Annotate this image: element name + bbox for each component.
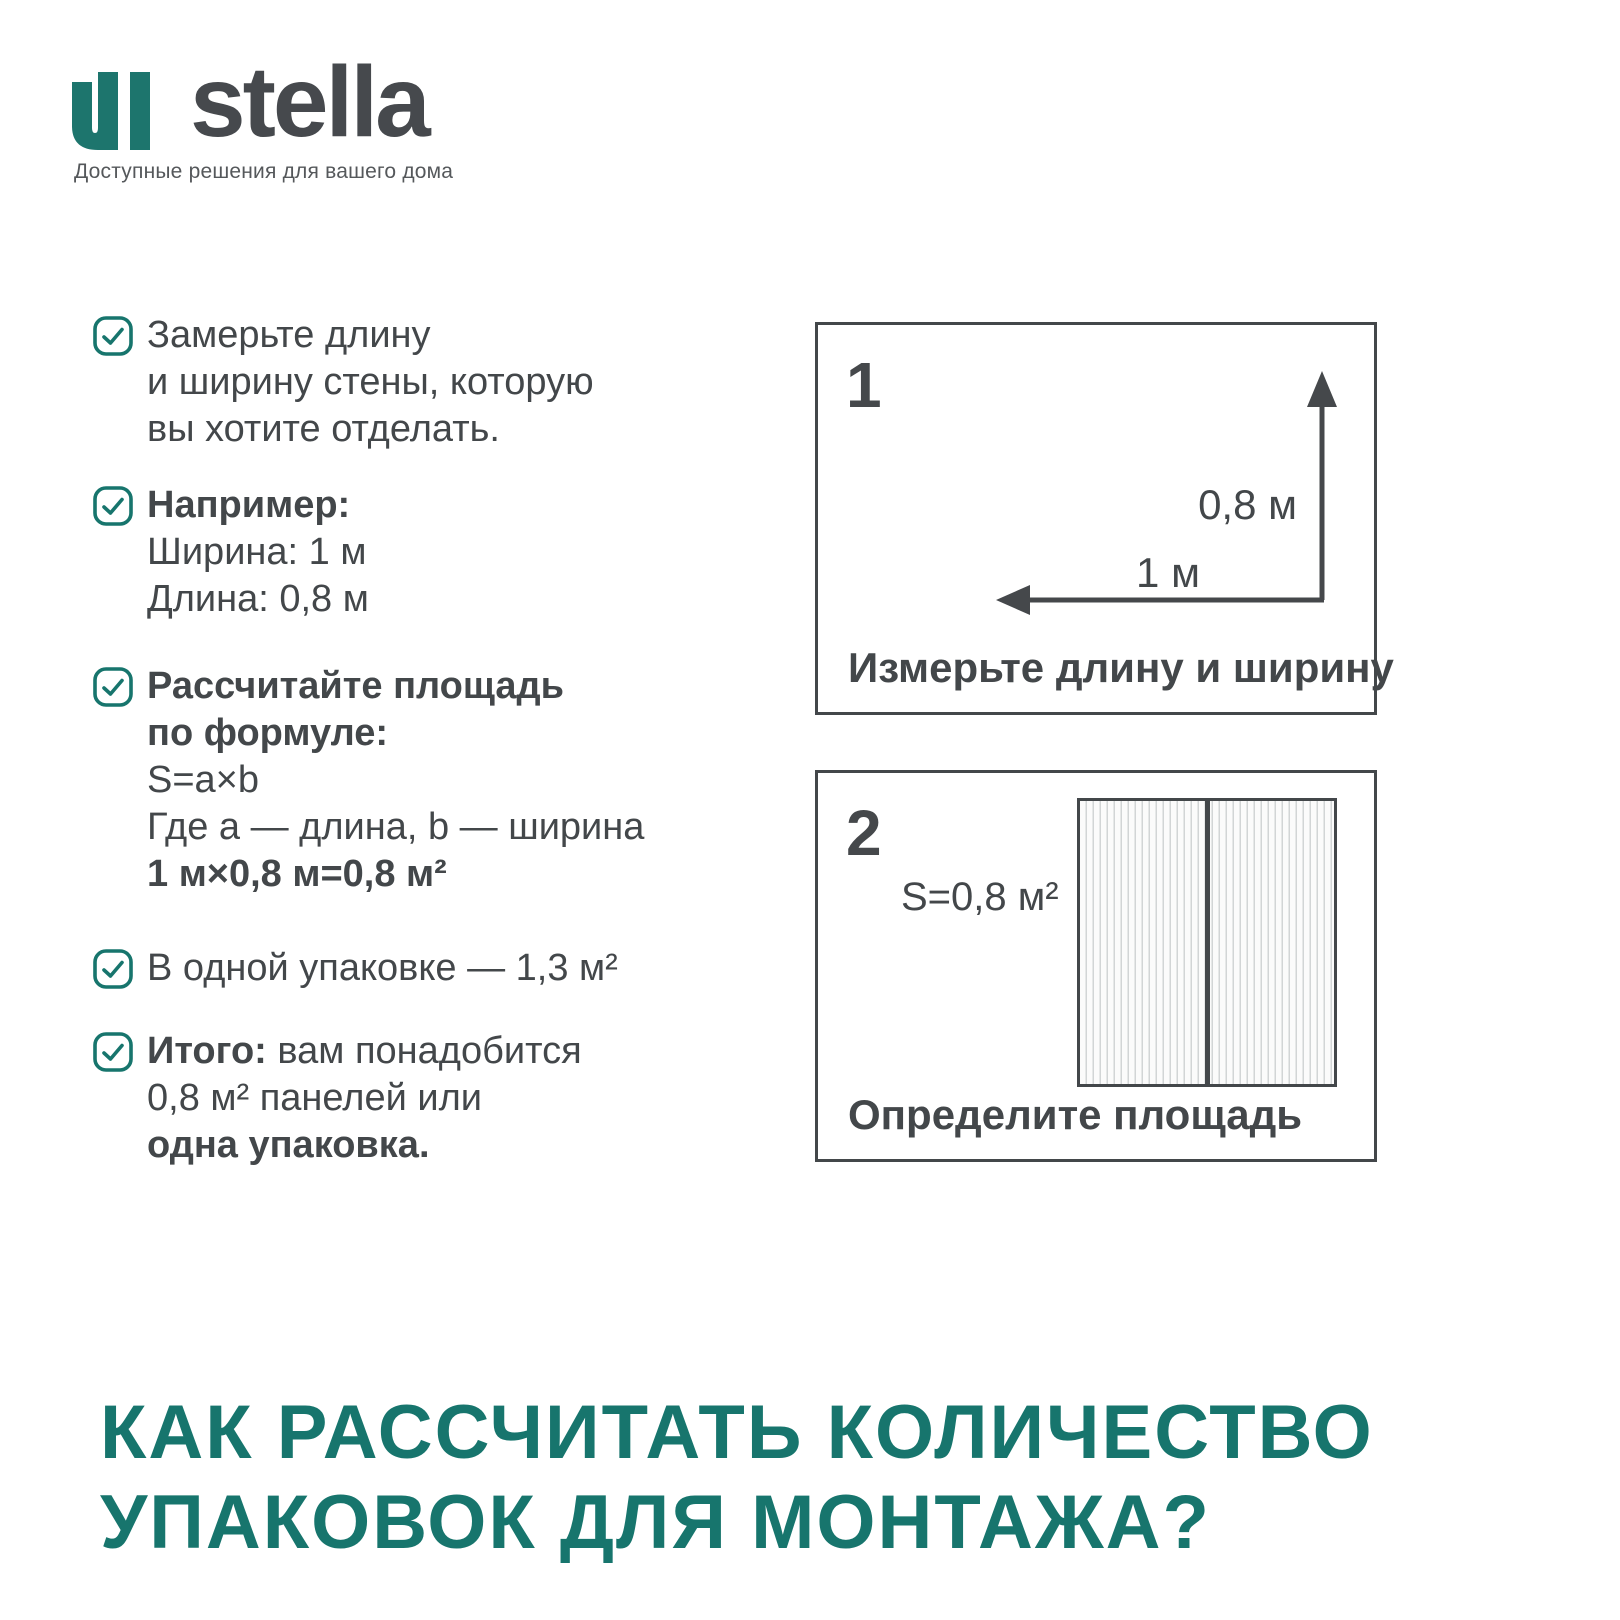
checklist-line: Ширина: 1 м <box>147 529 369 576</box>
step-box-2: 2 S=0,8 м² Определите площадь <box>815 770 1377 1162</box>
checklist-line: вы хотите отделать. <box>147 406 594 453</box>
page-title-line: КАК РАССЧИТАТЬ КОЛИЧЕСТВО <box>100 1388 1374 1478</box>
checklist-text: Итого: вам понадобится 0,8 м² панелей ил… <box>147 1028 582 1169</box>
page-title-line: УПАКОВОК ДЛЯ МОНТАЖА? <box>100 1478 1374 1568</box>
wall-panels-illustration <box>1077 798 1337 1087</box>
checklist-line: Где a — длина, b — ширина <box>147 804 644 851</box>
checklist-formula: 1 м×0,8 м=0,8 м² <box>147 851 644 898</box>
brand-tagline: Доступные решения для вашего дома <box>74 160 453 184</box>
checklist-line: Замерьте длину <box>147 312 594 359</box>
step-caption: Измерьте длину и ширину <box>848 644 1394 692</box>
checklist-item-measure: Замерьте длину и ширину стены, которую в… <box>93 312 733 453</box>
step-caption: Определите площадь <box>848 1091 1302 1139</box>
checklist-line: 0,8 м² панелей или <box>147 1075 582 1122</box>
checklist-item-example: Например: Ширина: 1 м Длина: 0,8 м <box>93 482 733 623</box>
checkmark-icon <box>93 949 133 989</box>
checkmark-icon <box>93 486 133 526</box>
left-arrowhead-icon <box>996 585 1030 615</box>
checklist-heading: по формуле: <box>147 710 644 757</box>
checklist-line: и ширину стены, которую <box>147 359 594 406</box>
panel-divider <box>1205 801 1210 1084</box>
step-box-1: 1 0,8 м 1 м Измерьте длину и ширину <box>815 322 1377 715</box>
checkmark-icon <box>93 316 133 356</box>
checklist-text: Например: Ширина: 1 м Длина: 0,8 м <box>147 482 369 623</box>
area-label: S=0,8 м² <box>901 875 1059 920</box>
checklist-line: Длина: 0,8 м <box>147 576 369 623</box>
checklist-item-package-area: В одной упаковке — 1,3 м² <box>93 945 733 992</box>
vertical-dimension-label: 0,8 м <box>1198 481 1297 529</box>
checklist-line: Итого: вам понадобится <box>147 1028 582 1075</box>
checklist-line-rest: вам понадобится <box>267 1030 582 1072</box>
checklist-line: одна упаковка. <box>147 1122 582 1169</box>
checklist-text: Замерьте длину и ширину стены, которую в… <box>147 312 594 453</box>
checkmark-icon <box>93 1032 133 1072</box>
checklist-item-formula: Рассчитайте площадь по формуле: S=a×b Гд… <box>93 663 733 898</box>
horizontal-dimension-label: 1 м <box>1098 549 1238 597</box>
step-number: 2 <box>846 801 882 865</box>
checklist-item-total: Итого: вам понадобится 0,8 м² панелей ил… <box>93 1028 733 1169</box>
checklist-text: В одной упаковке — 1,3 м² <box>147 945 618 992</box>
up-arrowhead-icon <box>1307 371 1337 407</box>
infographic-canvas: stella Доступные решения для вашего дома… <box>0 0 1620 1620</box>
checklist-heading: Например: <box>147 482 369 529</box>
page-title: КАК РАССЧИТАТЬ КОЛИЧЕСТВО УПАКОВОК ДЛЯ М… <box>100 1388 1374 1568</box>
brand-wordmark: stella <box>190 52 428 152</box>
checklist-heading: Рассчитайте площадь <box>147 663 644 710</box>
checklist-lead: Итого: <box>147 1030 267 1072</box>
checkmark-icon <box>93 667 133 707</box>
checklist-text: Рассчитайте площадь по формуле: S=a×b Гд… <box>147 663 644 898</box>
checklist-line: S=a×b <box>147 757 644 804</box>
checklist-line: В одной упаковке — 1,3 м² <box>147 945 618 992</box>
stella-logo-icon <box>72 72 190 152</box>
